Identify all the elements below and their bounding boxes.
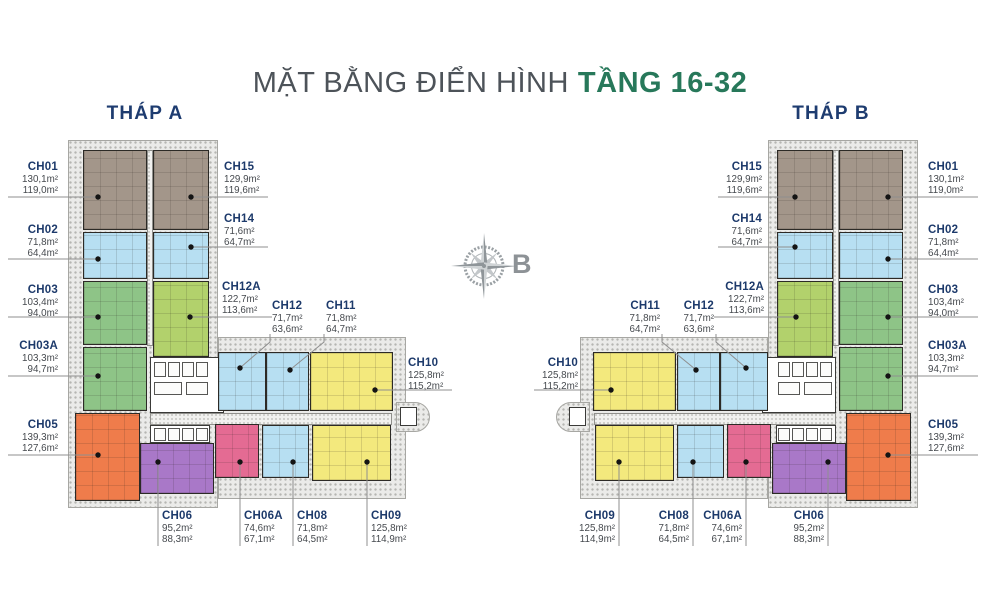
unit-code: CH10 <box>408 357 460 370</box>
unit-label-CH05: CH05139,3m²127,6m² <box>928 419 980 454</box>
unit-area: 103,4m² <box>6 297 58 308</box>
unit-area: 103,3m² <box>2 353 58 364</box>
elevator-box <box>778 428 790 441</box>
unit-label-CH15: CH15129,9m²119,6m² <box>710 161 762 196</box>
entrance-door <box>569 407 586 426</box>
unit-label-CH14: CH1471,6m²64,7m² <box>224 213 276 248</box>
unit-CH02 <box>83 232 147 279</box>
unit-area: 125,8m² <box>567 523 615 534</box>
unit-code: CH14 <box>710 213 762 226</box>
unit-label-CH09: CH09125,8m²114,9m² <box>567 510 615 545</box>
tower-b-title: THÁP B <box>792 103 870 125</box>
corridor <box>150 413 392 425</box>
unit-label-CH08: CH0871,8m²64,5m² <box>643 510 689 545</box>
unit-area: 119,0m² <box>6 185 58 196</box>
unit-label-CH12: CH1271,7m²63,6m² <box>272 300 312 335</box>
unit-code: CH06 <box>162 510 208 523</box>
unit-area: 129,9m² <box>710 174 762 185</box>
unit-area: 129,9m² <box>224 174 276 185</box>
elevator-box <box>778 362 790 377</box>
unit-area: 114,9m² <box>567 534 615 545</box>
stair-box <box>804 382 832 395</box>
unit-label-CH01: CH01130,1m²119,0m² <box>6 161 58 196</box>
unit-CH06A <box>215 424 259 478</box>
unit-code: CH11 <box>326 300 368 313</box>
unit-label-CH02: CH0271,8m²64,4m² <box>6 224 58 259</box>
unit-area: 95,2m² <box>162 523 208 534</box>
unit-code: CH14 <box>224 213 276 226</box>
unit-label-CH10: CH10125,8m²115,2m² <box>408 357 460 392</box>
unit-area: 71,8m² <box>326 313 368 324</box>
unit-CH06 <box>140 443 214 494</box>
unit-code: CH15 <box>224 161 276 174</box>
unit-CH06A <box>727 424 771 478</box>
unit-CH03A <box>839 347 903 411</box>
unit-label-CH08: CH0871,8m²64,5m² <box>297 510 343 545</box>
unit-area: 103,3m² <box>928 353 984 364</box>
unit-label-CH03A: CH03A103,3m²94,7m² <box>928 340 984 375</box>
unit-area: 119,6m² <box>710 185 762 196</box>
unit-code: CH09 <box>371 510 419 523</box>
unit-area: 64,7m² <box>710 237 762 248</box>
unit-code: CH12 <box>272 300 312 313</box>
unit-area: 64,7m² <box>224 237 276 248</box>
unit-CH15 <box>153 150 209 230</box>
unit-CH03 <box>839 281 903 345</box>
unit-label-CH03: CH03103,4m²94,0m² <box>928 284 980 319</box>
unit-area: 64,5m² <box>643 534 689 545</box>
elevator-box <box>168 428 180 441</box>
unit-code: CH02 <box>928 224 980 237</box>
unit-label-CH06: CH0695,2m²88,3m² <box>162 510 208 545</box>
unit-label-CH02: CH0271,8m²64,4m² <box>928 224 980 259</box>
page-title-main: MẶT BẰNG ĐIỂN HÌNH <box>253 67 569 99</box>
unit-label-CH05: CH05139,3m²127,6m² <box>6 419 58 454</box>
compass-north-label: B <box>512 249 532 280</box>
unit-code: CH01 <box>6 161 58 174</box>
unit-label-CH11: CH1171,8m²64,7m² <box>326 300 368 335</box>
unit-area: 71,7m² <box>674 313 714 324</box>
unit-CH08 <box>677 425 724 478</box>
elevator-box <box>806 428 818 441</box>
unit-area: 64,7m² <box>326 324 368 335</box>
elevator-box <box>182 428 194 441</box>
unit-CH11 <box>677 352 720 411</box>
unit-area: 71,7m² <box>272 313 312 324</box>
unit-code: CH15 <box>710 161 762 174</box>
unit-CH14 <box>153 232 209 279</box>
unit-area: 94,0m² <box>6 308 58 319</box>
page-title-highlight: TẦNG 16-32 <box>578 67 747 99</box>
unit-area: 64,4m² <box>6 248 58 259</box>
unit-area: 74,6m² <box>244 523 294 534</box>
elevator-box <box>806 362 818 377</box>
elevator-box <box>196 428 208 441</box>
unit-CH15 <box>777 150 833 230</box>
unit-area: 64,4m² <box>928 248 980 259</box>
unit-code: CH05 <box>6 419 58 432</box>
unit-code: CH12A <box>706 281 764 294</box>
unit-CH06 <box>772 443 846 494</box>
unit-area: 125,8m² <box>408 370 460 381</box>
unit-CH08 <box>262 425 309 478</box>
unit-CH10 <box>593 352 676 411</box>
unit-area: 139,3m² <box>6 432 58 443</box>
unit-code: CH09 <box>567 510 615 523</box>
unit-area: 64,5m² <box>297 534 343 545</box>
unit-CH14 <box>777 232 833 279</box>
page-title: MẶT BẰNG ĐIỂN HÌNHTẦNG 16-32 <box>0 67 1000 100</box>
unit-code: CH08 <box>643 510 689 523</box>
unit-area: 71,8m² <box>928 237 980 248</box>
stair-box <box>154 382 182 395</box>
unit-CH01 <box>83 150 147 230</box>
unit-label-CH01: CH01130,1m²119,0m² <box>928 161 980 196</box>
unit-area: 113,6m² <box>706 305 764 316</box>
tower-a-title: THÁP A <box>107 103 184 125</box>
elevator-box <box>820 362 832 377</box>
unit-CH12A <box>153 281 209 357</box>
unit-area: 94,0m² <box>928 308 980 319</box>
unit-CH05 <box>846 413 911 501</box>
unit-area: 127,6m² <box>928 443 980 454</box>
unit-area: 130,1m² <box>6 174 58 185</box>
unit-area: 130,1m² <box>928 174 980 185</box>
stair-box <box>778 382 800 395</box>
unit-area: 74,6m² <box>692 523 742 534</box>
unit-area: 114,9m² <box>371 534 419 545</box>
unit-area: 119,6m² <box>224 185 276 196</box>
unit-code: CH12A <box>222 281 280 294</box>
unit-code: CH12 <box>674 300 714 313</box>
unit-label-CH15: CH15129,9m²119,6m² <box>224 161 276 196</box>
unit-CH01 <box>839 150 903 230</box>
unit-area: 119,0m² <box>928 185 980 196</box>
unit-label-CH10: CH10125,8m²115,2m² <box>526 357 578 392</box>
elevator-box <box>196 362 208 377</box>
unit-area: 139,3m² <box>928 432 980 443</box>
unit-area: 94,7m² <box>928 364 984 375</box>
elevator-box <box>792 362 804 377</box>
unit-area: 115,2m² <box>408 381 460 392</box>
unit-code: CH06A <box>692 510 742 523</box>
unit-code: CH01 <box>928 161 980 174</box>
unit-area: 125,8m² <box>371 523 419 534</box>
unit-CH09 <box>312 425 391 481</box>
unit-label-CH11: CH1171,8m²64,7m² <box>618 300 660 335</box>
unit-label-CH14: CH1471,6m²64,7m² <box>710 213 762 248</box>
unit-CH11 <box>266 352 309 411</box>
elevator-box <box>154 362 166 377</box>
unit-area: 127,6m² <box>6 443 58 454</box>
unit-area: 94,7m² <box>2 364 58 375</box>
unit-code: CH02 <box>6 224 58 237</box>
unit-area: 71,8m² <box>643 523 689 534</box>
unit-code: CH03 <box>928 284 980 297</box>
unit-area: 67,1m² <box>244 534 294 545</box>
unit-label-CH03A: CH03A103,3m²94,7m² <box>2 340 58 375</box>
unit-code: CH11 <box>618 300 660 313</box>
unit-area: 63,6m² <box>674 324 714 335</box>
unit-CH10 <box>310 352 393 411</box>
entrance-door <box>400 407 417 426</box>
unit-CH05 <box>75 413 140 501</box>
unit-area: 103,4m² <box>928 297 980 308</box>
unit-label-CH09: CH09125,8m²114,9m² <box>371 510 419 545</box>
unit-code: CH08 <box>297 510 343 523</box>
unit-area: 71,8m² <box>297 523 343 534</box>
unit-CH12 <box>218 352 266 411</box>
unit-area: 71,6m² <box>710 226 762 237</box>
unit-code: CH05 <box>928 419 980 432</box>
elevator-box <box>792 428 804 441</box>
unit-area: 71,8m² <box>618 313 660 324</box>
unit-code: CH03A <box>928 340 984 353</box>
unit-CH02 <box>839 232 903 279</box>
unit-CH03A <box>83 347 147 411</box>
unit-CH12 <box>720 352 768 411</box>
unit-CH12A <box>777 281 833 357</box>
unit-label-CH06A: CH06A74,6m²67,1m² <box>244 510 294 545</box>
unit-code: CH03 <box>6 284 58 297</box>
unit-label-CH06: CH0695,2m²88,3m² <box>778 510 824 545</box>
unit-label-CH06A: CH06A74,6m²67,1m² <box>692 510 742 545</box>
unit-area: 71,6m² <box>224 226 276 237</box>
corridor <box>594 413 836 425</box>
elevator-box <box>168 362 180 377</box>
unit-area: 67,1m² <box>692 534 742 545</box>
unit-area: 88,3m² <box>778 534 824 545</box>
elevator-box <box>182 362 194 377</box>
unit-area: 95,2m² <box>778 523 824 534</box>
unit-label-CH12A: CH12A122,7m²113,6m² <box>706 281 764 316</box>
unit-code: CH06 <box>778 510 824 523</box>
unit-area: 64,7m² <box>618 324 660 335</box>
elevator-box <box>154 428 166 441</box>
unit-CH03 <box>83 281 147 345</box>
unit-area: 115,2m² <box>526 381 578 392</box>
unit-code: CH10 <box>526 357 578 370</box>
unit-area: 71,8m² <box>6 237 58 248</box>
unit-label-CH03: CH03103,4m²94,0m² <box>6 284 58 319</box>
unit-code: CH06A <box>244 510 294 523</box>
unit-code: CH03A <box>2 340 58 353</box>
unit-area: 88,3m² <box>162 534 208 545</box>
unit-CH09 <box>595 425 674 481</box>
unit-label-CH12: CH1271,7m²63,6m² <box>674 300 714 335</box>
unit-area: 125,8m² <box>526 370 578 381</box>
unit-area: 63,6m² <box>272 324 312 335</box>
elevator-box <box>820 428 832 441</box>
stair-box <box>186 382 208 395</box>
unit-area: 122,7m² <box>706 294 764 305</box>
